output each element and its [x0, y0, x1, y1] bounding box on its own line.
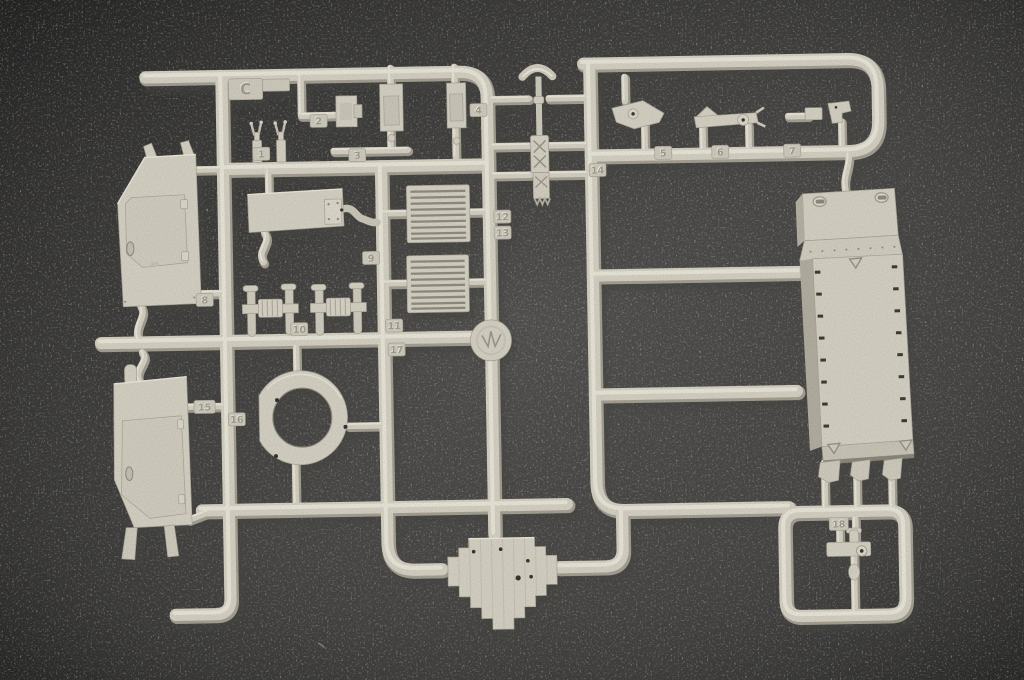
- photo-scene: C C 11 22 33 44 55 66 77 88 99 1010 1111…: [0, 0, 1024, 680]
- photo-grain: [0, 0, 1024, 680]
- model-kit-sprue-photo: C C 11 22 33 44 55 66 77 88 99 1010 1111…: [0, 0, 1024, 680]
